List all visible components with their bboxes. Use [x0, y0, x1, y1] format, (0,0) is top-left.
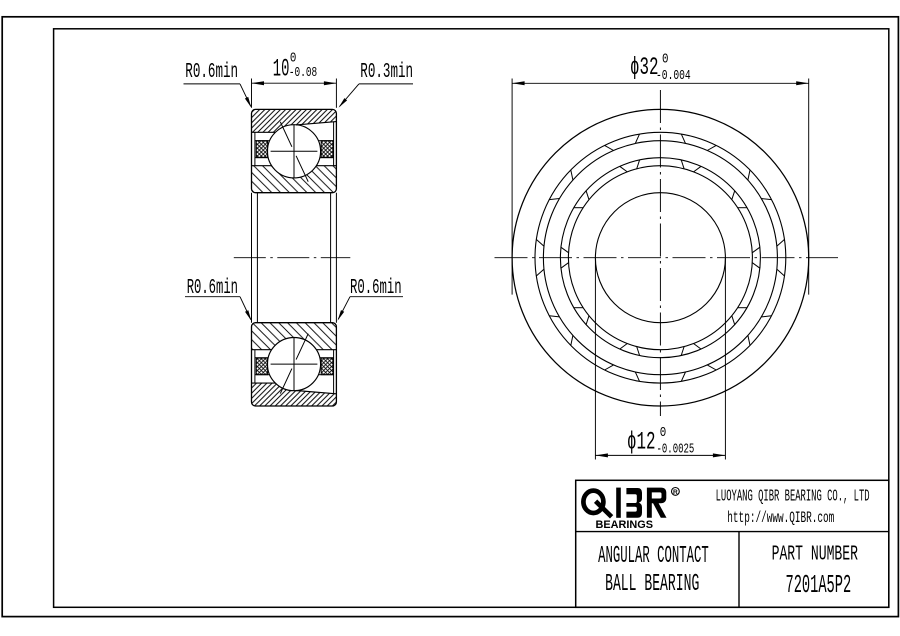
svg-text:10: 10	[273, 55, 290, 84]
svg-text:ϕ32: ϕ32	[630, 53, 659, 82]
svg-text:BALL BEARING: BALL BEARING	[605, 571, 699, 598]
svg-text:ϕ12: ϕ12	[627, 428, 656, 457]
svg-text:R0.3min: R0.3min	[360, 60, 413, 84]
svg-text:http://www.QIBR.com: http://www.QIBR.com	[727, 509, 834, 527]
svg-text:R0.6min: R0.6min	[185, 60, 238, 84]
svg-text:R: R	[673, 489, 678, 496]
svg-text:ANGULAR CONTACT: ANGULAR CONTACT	[598, 543, 709, 570]
svg-text:0: 0	[662, 51, 669, 67]
svg-text:PART NUMBER: PART NUMBER	[772, 543, 858, 567]
svg-text:-0.08: -0.08	[289, 65, 317, 81]
svg-text:0: 0	[660, 425, 667, 441]
svg-text:-0.004: -0.004	[656, 68, 691, 84]
svg-text:LUOYANG QIBR BEARING CO., LTD: LUOYANG QIBR BEARING CO., LTD	[716, 487, 870, 505]
svg-text:7201A5P2: 7201A5P2	[786, 571, 852, 600]
svg-text:-0.0025: -0.0025	[657, 441, 695, 457]
svg-text:BEARINGS: BEARINGS	[596, 519, 654, 531]
